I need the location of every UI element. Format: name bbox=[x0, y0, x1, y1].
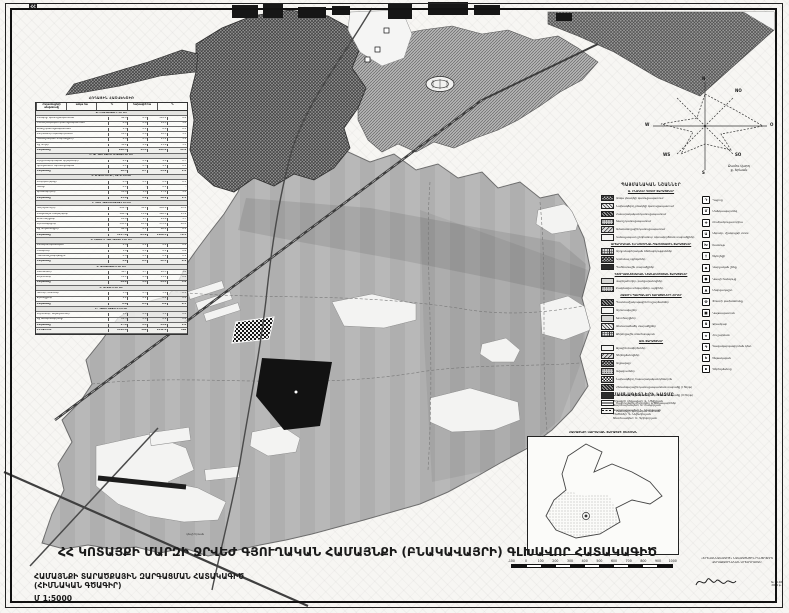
legend-item: Անտառածածկ տարածքներ bbox=[601, 323, 701, 330]
legend-swatch bbox=[601, 286, 614, 293]
specialists-lines: Ծրագրի ղեկավար՝ Վ. ՄելիքյանՃարտարապետ՝ Ա… bbox=[613, 399, 741, 421]
facility-icon: Ա bbox=[702, 230, 710, 238]
legend-item: Ջերմոցային տնտեսություն bbox=[601, 331, 701, 338]
wind-rose-diagram bbox=[645, 80, 780, 172]
icon-legend-item: ▪ Գերեզմանոց bbox=[702, 365, 786, 373]
legend-swatch bbox=[601, 234, 614, 241]
legend-item-label: ԱՅԼ ՏԱՐԱԾՔՆԵՐ bbox=[639, 339, 663, 343]
scale-bar-label: 600 bbox=[607, 559, 622, 563]
scale-bar-labels: -10001002003004005006007008009001000 bbox=[504, 559, 680, 563]
legend-item: Արոտավայրեր bbox=[601, 307, 701, 314]
legend-swatch bbox=[601, 384, 614, 391]
inset-map-outline bbox=[528, 437, 678, 552]
icon-label: Ենթակայան bbox=[713, 357, 731, 360]
corner-stamp: ՀՀ bbox=[29, 4, 37, 10]
wind-rose-label-ws: WS bbox=[663, 152, 670, 157]
legend-swatch bbox=[601, 299, 614, 306]
legend-item: Խոտհարքներ bbox=[601, 315, 701, 322]
icon-legend-item: Խ Խանութ bbox=[702, 241, 786, 249]
icon-legend-item: Ջ Ջրամբար bbox=[702, 320, 786, 328]
legend-swatch bbox=[601, 315, 614, 322]
facility-icon: ▲ bbox=[702, 286, 710, 294]
icon-label: Ակումբ, մշակույթի տուն bbox=[713, 232, 749, 235]
legend-item: Հեռանկարային կառուցապատման տարածք (I հեր… bbox=[601, 384, 701, 391]
legend-item: Ամառանոցային կառուցապատում bbox=[601, 226, 701, 233]
legend-item-label: Ավազուտներ bbox=[616, 370, 701, 373]
scale-bar-label: 700 bbox=[621, 559, 636, 563]
legend-item-label: Խառը կառուցապատում bbox=[616, 220, 701, 223]
land-balance-table: ՀՈՂԱՅԻՆ ՀԱՇՎԵԿՇԻՌ Հողատեսքերի անվանումըա… bbox=[35, 96, 188, 335]
legend-item: ԱՐՏԱԴՐԱԿԱՆ ԵՎ ԿՈՄՈՒՆԱԼ-ՊԱՀԵՍՏԱՅԻՆ ՏԱՐԱԾՔ… bbox=[601, 243, 701, 246]
facility-icon: Գ bbox=[702, 343, 710, 351]
legend-item-label: ԳՅՈՒՂԱՏՆՏԵՍԱԿԱՆ ՆՇԱՆԱԿՈՒԹՅԱՆ ՏԱՐԱԾՔՆԵՐ bbox=[615, 272, 688, 276]
legend-item-label: Ամառանոցային կառուցապատում bbox=[616, 228, 701, 231]
facility-icon: ✚ bbox=[702, 219, 710, 227]
legend-item: Վարելահողեր, բանջարանոցներ bbox=[601, 278, 701, 285]
signature bbox=[694, 574, 738, 590]
legend-title: ՊԱՅՄԱՆԱԿԱՆ ՆՇԱՆՆԵՐ bbox=[601, 182, 701, 187]
facility-icon: Մ bbox=[702, 207, 710, 215]
scale-bar-label: 400 bbox=[577, 559, 592, 563]
table-header-cell: առկա հա bbox=[66, 103, 96, 110]
specialists-panel: ՄԱՍՆԱԳԵՏՆԵՐԻ ԿԱԶՄԸ Ծրագրի ղեկավար՝ Վ. Մե… bbox=[613, 392, 741, 421]
table-header: Հողատեսքերի անվանումըառկա հա%նախագիծ հա% bbox=[36, 103, 187, 111]
icon-legend-item: Ա Ակումբ, մշակույթի տուն bbox=[702, 230, 786, 238]
wind-rose: N NO O SO S WS W Քամու վարդ ք. Երևան bbox=[645, 76, 785, 186]
facility-icon: ◆ bbox=[702, 264, 710, 272]
icon-legend-item: Դ Դպրոց bbox=[702, 196, 786, 204]
wind-rose-caption: Քամու վարդ ք. Երևան bbox=[713, 164, 765, 173]
table-header-cell: Հողատեսքերի անվանումը bbox=[36, 103, 66, 110]
facility-icon: Դ bbox=[702, 196, 710, 204]
legend-swatch bbox=[601, 345, 614, 352]
icon-legend-item: ◆ Վարչական շենք bbox=[702, 264, 786, 272]
legend-item-label: Ջրային մակերեսներ bbox=[616, 347, 701, 350]
legend-swatch bbox=[601, 248, 614, 255]
legend-item-label: Խոտհարքներ bbox=[616, 317, 701, 320]
subtitle: ՀԱՄԱՅՆՔԻ ՏԱՐԱԾՔԱՅԻՆ ԶԱՐԳԱՑՄԱՆ ՀԱՏԱԿԱԳԻԾ … bbox=[34, 572, 244, 591]
legend-item: Բազմամյա տնկարկներ, այգիներ bbox=[601, 286, 701, 293]
credits-block: «ԵՐԵՎԱՆՆԱԽԱԳԻԾ» ՆԱԽԱԳԾԱՅԻՆ ԻՆՍՏԻՏՈՒՏ ՔԱՂ… bbox=[690, 557, 784, 601]
icon-label: Փոստի բաժանմունք bbox=[713, 300, 743, 303]
legend-rows: Ա. ԲՆԱԿԵԼԻ ԳՈՏՈՒ ՏԱՐԱԾՔՆԵՐ Առկա բնակելի … bbox=[601, 190, 701, 414]
legend-item: Գերեզմանոցներ bbox=[601, 353, 701, 360]
icon-label: Հուշարձան bbox=[713, 334, 730, 337]
table-title: ՀՈՂԱՅԻՆ ՀԱՇՎԵԿՇԻՌ bbox=[35, 96, 188, 100]
legend-item: Հասարակական կառուցապատում bbox=[601, 211, 701, 218]
icon-label: Խանութ bbox=[713, 244, 725, 247]
legend-item-label: Նախագծվող բնակելի կառուցապատում bbox=[616, 205, 701, 208]
legend-item: Կոմունալ օբյեկտներ bbox=[601, 256, 701, 263]
icon-legend-item: Գ Գազակարգավորման կետ bbox=[702, 343, 786, 351]
icon-legend-item: ● Կապի հանգույց bbox=[702, 275, 786, 283]
credits-line-2: ՔԱՂԱՔԱՇԻՆԱԿԱՆ ԱՐՏԱԴՐԱՄԱՍ bbox=[690, 561, 784, 565]
legend-item: ՀԱՏՈՒԿ ՊԱՀՊԱՆՎՈՂ ՏԱՐԱԾՔՆԵՐԻ ՀՈՂԵՐ bbox=[601, 294, 701, 297]
scale-bar-label: 0 bbox=[519, 559, 534, 563]
icon-legend-item: † Եկեղեցի bbox=[702, 252, 786, 260]
legend-item-label: Հասարակական կառուցապատում bbox=[616, 213, 701, 216]
legend-swatch bbox=[601, 376, 614, 383]
legend-item-label: Նախագծվող հասարակական կենտրոն bbox=[616, 378, 701, 381]
plan-sheet: ՀՀ ՀՈՂԱՅԻՆ ՀԱՇՎԵԿՇԻՌ Հողատեսքերի անվանու… bbox=[0, 0, 789, 613]
legend-panel: ՊԱՅՄԱՆԱԿԱՆ ՆՇԱՆՆԵՐ Ա. ԲՆԱԿԵԼԻ ԳՈՏՈՒ ՏԱՐԱ… bbox=[601, 182, 701, 416]
legend-swatch bbox=[601, 219, 614, 226]
stamp-note: № 14-02 2004 թ. bbox=[771, 581, 782, 588]
facility-icon: ★ bbox=[702, 332, 710, 340]
wind-rose-label-o: O bbox=[770, 122, 773, 127]
icon-legend-item: Մ Մանկապարտեզ bbox=[702, 207, 786, 215]
legend-item-label: Աղբավայր bbox=[616, 362, 701, 365]
legend-item: ԳՅՈՒՂԱՏՆՏԵՍԱԿԱՆ ՆՇԱՆԱԿՈՒԹՅԱՆ ՏԱՐԱԾՔՆԵՐ bbox=[601, 273, 701, 276]
wind-rose-label-so: SO bbox=[735, 152, 741, 157]
icon-label: Կաթսայատուն bbox=[713, 312, 735, 315]
facility-icon: Փ bbox=[702, 298, 710, 306]
legend-item-label: Բազմամյա տնկարկներ, այգիներ bbox=[616, 287, 701, 290]
legend-item-label: ՀԱՏՈՒԿ ՊԱՀՊԱՆՎՈՂ ՏԱՐԱԾՔՆԵՐԻ ՀՈՂԵՐ bbox=[620, 293, 681, 297]
facility-icon: ▪ bbox=[702, 365, 710, 373]
main-title: ՀՀ ԿՈՏԱՅՔԻ ՄԱՐԶԻ ՋՐՎԵԺ ԳՅՈՒՂԱԿԱՆ ՀԱՄԱՅՆՔ… bbox=[58, 545, 657, 559]
inset-map: ՀԱՄԱՅՆՔԻ ՎԱՐՉԱԿԱՆ ՏԱՐԱԾՔԻ ՍԽԵՄԱՆ bbox=[527, 430, 679, 558]
icon-legend-item: Փ Փոստի բաժանմունք bbox=[702, 298, 786, 306]
legend-item: Պահեստային տարածքներ bbox=[601, 264, 701, 271]
table-header-cell: % bbox=[96, 103, 126, 110]
scale-bar-label: 1000 bbox=[665, 559, 680, 563]
legend-item-label: Անտառածածկ տարածքներ bbox=[616, 325, 701, 328]
legend-swatch bbox=[601, 256, 614, 263]
icon-label: Մարզադաշտ bbox=[713, 289, 733, 292]
legend-item-label: Ա. ԲՆԱԿԵԼԻ ԳՈՏՈՒ ՏԱՐԱԾՔՆԵՐ bbox=[628, 189, 674, 193]
icon-label: Վարչական շենք bbox=[713, 266, 737, 269]
legend-swatch bbox=[601, 203, 614, 210]
scale-bar-label: 500 bbox=[592, 559, 607, 563]
icon-label: Դպրոց bbox=[713, 199, 723, 202]
legend-swatch bbox=[601, 360, 614, 367]
legend-item: Աղբավայր bbox=[601, 360, 701, 367]
scale-bar-label: 300 bbox=[563, 559, 578, 563]
legend-swatch bbox=[601, 226, 614, 233]
legend-item-label: Արդյունաբերական ձեռնարկություններ bbox=[616, 250, 701, 253]
table-row: ԸՆԴԱՄԵՆԸ1412.81001412.8100 bbox=[36, 328, 187, 333]
scale-bar-label: 800 bbox=[636, 559, 651, 563]
specialist-line: Տնտեսագետ՝ Ս. Գրիգորյան bbox=[613, 416, 741, 420]
scale-bar-label: 200 bbox=[548, 559, 563, 563]
icon-legend-item: ■ Կաթսայատուն bbox=[702, 309, 786, 317]
scale-bar-label: 900 bbox=[651, 559, 666, 563]
icon-legend-item: ★ Հուշարձան bbox=[702, 332, 786, 340]
scale-bar-label: 100 bbox=[533, 559, 548, 563]
legend-swatch bbox=[601, 195, 614, 202]
legend-swatch bbox=[601, 264, 614, 271]
legend-swatch bbox=[601, 323, 614, 330]
legend-item-label: ԱՐՏԱԴՐԱԿԱՆ ԵՎ ԿՈՄՈՒՆԱԼ-ՊԱՀԵՍՏԱՅԻՆ ՏԱՐԱԾՔ… bbox=[611, 242, 691, 246]
legend-item: Ջրային մակերեսներ bbox=[601, 345, 701, 352]
legend-swatch bbox=[601, 278, 614, 285]
wind-rose-label-s: S bbox=[702, 170, 705, 175]
legend-item-label: Պահեստային տարածքներ bbox=[616, 266, 701, 269]
icon-legend-item: ▲ Մարզադաշտ bbox=[702, 286, 786, 294]
icon-legend-item: ✚ Բուժամբուլատորիա bbox=[702, 219, 786, 227]
table-body: Ա. ԲՆԱԿԱՎԱՅՐԻ ՀՈՂԵՐ Բնակելի կառուցապատմա… bbox=[36, 111, 187, 333]
legend-item-label: Գերեզմանոցներ bbox=[616, 354, 701, 357]
inset-map-title: ՀԱՄԱՅՆՔԻ ՎԱՐՉԱԿԱՆ ՏԱՐԱԾՔԻ ՍԽԵՄԱՆ bbox=[527, 430, 679, 434]
scale-bar-label: -100 bbox=[504, 559, 519, 563]
legend-item-label: Վարելահողեր, բանջարանոցներ bbox=[616, 280, 701, 283]
road-destination-label: դեպի Երևան bbox=[186, 533, 204, 536]
icon-label: Ջրամբար bbox=[713, 323, 728, 326]
facility-icon: ■ bbox=[702, 309, 710, 317]
legend-item: Նախագծվող հասարակական կենտրոն bbox=[601, 376, 701, 383]
wind-rose-label-w: W bbox=[645, 122, 649, 127]
specialists-title: ՄԱՍՆԱԳԵՏՆԵՐԻ ԿԱԶՄԸ bbox=[613, 392, 741, 397]
inset-map-box bbox=[527, 436, 679, 555]
legend-item-label: Առկա բնակելի կառուցապատում bbox=[616, 197, 701, 200]
legend-item: Առկա բնակելի կառուցապատում bbox=[601, 195, 701, 202]
legend-item: Արդյունաբերական ձեռնարկություններ bbox=[601, 248, 701, 255]
facility-icon: Ջ bbox=[702, 320, 710, 328]
table-header-cell: նախագիծ հա bbox=[127, 103, 157, 110]
legend-item-label: Պատմամշակութային հուշարձաններ bbox=[616, 301, 701, 304]
scale-bar: -10001002003004005006007008009001000 bbox=[504, 559, 680, 568]
icon-label: Գազակարգավորման կետ bbox=[713, 345, 752, 348]
icon-label: Կապի հանգույց bbox=[713, 278, 737, 281]
icon-label: Եկեղեցի bbox=[713, 255, 726, 258]
legend-swatch bbox=[601, 307, 614, 314]
legend-item: Նախագծվող բնակելի կառուցապատում bbox=[601, 203, 701, 210]
drawing-scale: Մ 1:5000 bbox=[34, 594, 72, 603]
legend-item-label: Ջերմոցային տնտեսություն bbox=[616, 333, 701, 336]
legend-item: Կանաչապատ ընդհանուր օգտագործման տարածքնե… bbox=[601, 234, 701, 241]
legend-item: Ա. ԲՆԱԿԵԼԻ ԳՈՏՈՒ ՏԱՐԱԾՔՆԵՐ bbox=[601, 190, 701, 193]
legend-item-label: Կանաչապատ ընդհանուր օգտագործման տարածքնե… bbox=[616, 236, 701, 239]
icon-label: Գերեզմանոց bbox=[713, 368, 732, 371]
legend-item-label: Կոմունալ օբյեկտներ bbox=[616, 258, 701, 261]
legend-swatch bbox=[601, 211, 614, 218]
table-grid: Հողատեսքերի անվանումըառկա հա%նախագիծ հա%… bbox=[35, 102, 188, 335]
icon-label: Բուժամբուլատորիա bbox=[713, 221, 743, 224]
legend-item-label: Հեռանկարային կառուցապատման տարածք (I հեր… bbox=[616, 386, 701, 389]
legend-item: Խառը կառուցապատում bbox=[601, 219, 701, 226]
wind-rose-label-no: NO bbox=[735, 88, 742, 93]
facility-icon: ● bbox=[702, 275, 710, 283]
facility-icon: † bbox=[702, 252, 710, 260]
legend-item-label: Արոտավայրեր bbox=[616, 309, 701, 312]
legend-swatch bbox=[601, 353, 614, 360]
legend-swatch bbox=[601, 368, 614, 375]
wind-rose-label-n: N bbox=[702, 76, 705, 81]
legend-swatch bbox=[601, 331, 614, 338]
facility-icon: Ե bbox=[702, 354, 710, 362]
legend-item: Ավազուտներ bbox=[601, 368, 701, 375]
scale-bar-segments bbox=[511, 564, 673, 569]
icon-label: Մանկապարտեզ bbox=[713, 210, 738, 213]
icon-legend-item: Ե Ենթակայան bbox=[702, 354, 786, 362]
icon-legend: Դ Դպրոց Մ Մանկապարտեզ ✚ Բուժամբուլատորիա… bbox=[702, 196, 786, 377]
table-header-cell: % bbox=[157, 103, 187, 110]
facility-icon: Խ bbox=[702, 241, 710, 249]
legend-item: Պատմամշակութային հուշարձաններ bbox=[601, 299, 701, 306]
legend-item: ԱՅԼ ՏԱՐԱԾՔՆԵՐ bbox=[601, 340, 701, 343]
